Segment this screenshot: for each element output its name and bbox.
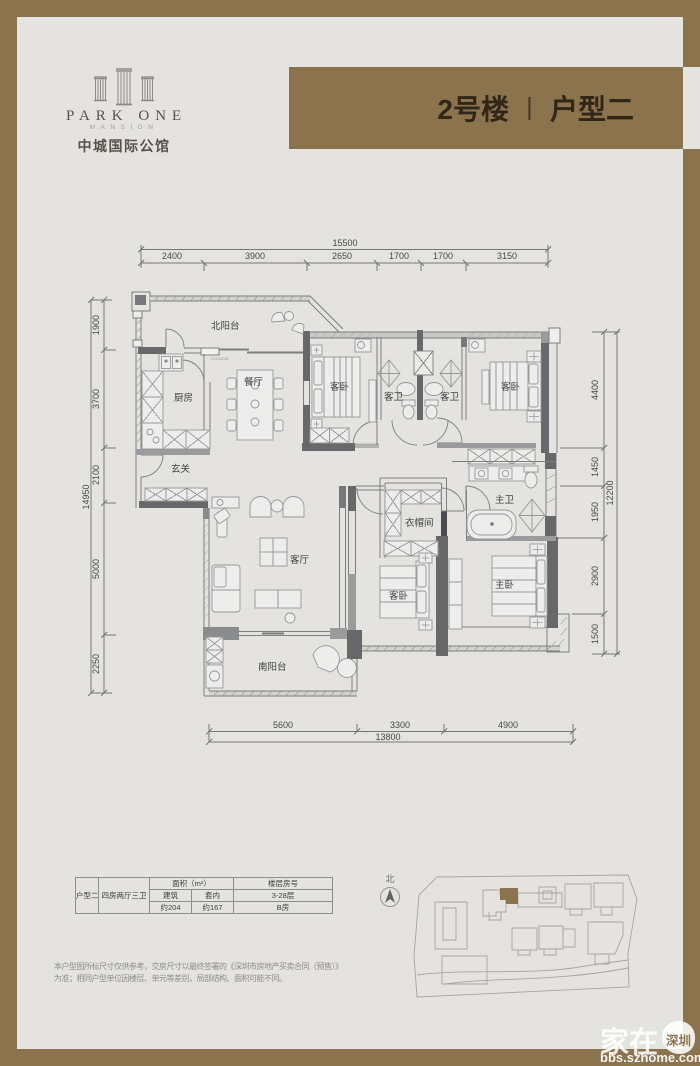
svg-text:主卧: 主卧 xyxy=(495,579,515,591)
svg-text:2250: 2250 xyxy=(91,654,101,674)
svg-text:南阳台: 南阳台 xyxy=(258,661,287,673)
svg-text:客卫: 客卫 xyxy=(384,391,404,403)
svg-text:1500: 1500 xyxy=(590,624,600,644)
svg-text:5600: 5600 xyxy=(273,720,293,730)
svg-text:2650: 2650 xyxy=(332,251,352,261)
svg-text:餐厅: 餐厅 xyxy=(244,376,264,388)
svg-text:北阳台: 北阳台 xyxy=(211,320,240,332)
svg-text:客卧: 客卧 xyxy=(330,381,350,393)
svg-text:客卫: 客卫 xyxy=(440,391,460,403)
svg-text:2100: 2100 xyxy=(91,465,101,485)
svg-text:客卧: 客卧 xyxy=(389,590,409,602)
svg-text:1950: 1950 xyxy=(590,502,600,522)
svg-text:2900: 2900 xyxy=(590,566,600,586)
svg-text:3300: 3300 xyxy=(390,720,410,730)
svg-text:2400: 2400 xyxy=(162,251,182,261)
svg-text:C2430248: C2430248 xyxy=(210,356,229,361)
svg-text:1900: 1900 xyxy=(91,315,101,335)
svg-text:玄关: 玄关 xyxy=(171,463,191,475)
svg-text:4900: 4900 xyxy=(498,720,518,730)
svg-text:3900: 3900 xyxy=(245,251,265,261)
svg-text:3700: 3700 xyxy=(91,389,101,409)
svg-text:12200: 12200 xyxy=(605,480,615,505)
svg-text:衣帽间: 衣帽间 xyxy=(405,517,434,529)
svg-text:客卧: 客卧 xyxy=(501,381,521,393)
svg-text:15500: 15500 xyxy=(332,238,357,248)
svg-text:厨房: 厨房 xyxy=(174,392,193,404)
svg-text:14950: 14950 xyxy=(81,484,91,509)
svg-text:1700: 1700 xyxy=(433,251,453,261)
svg-text:主卫: 主卫 xyxy=(495,494,515,506)
svg-text:13800: 13800 xyxy=(375,732,400,742)
svg-text:1450: 1450 xyxy=(590,457,600,477)
svg-text:3150: 3150 xyxy=(497,251,517,261)
svg-text:北: 北 xyxy=(385,874,394,884)
svg-text:客厅: 客厅 xyxy=(290,554,310,566)
svg-text:5000: 5000 xyxy=(91,559,101,579)
svg-text:4400: 4400 xyxy=(590,380,600,400)
svg-text:1700: 1700 xyxy=(389,251,409,261)
